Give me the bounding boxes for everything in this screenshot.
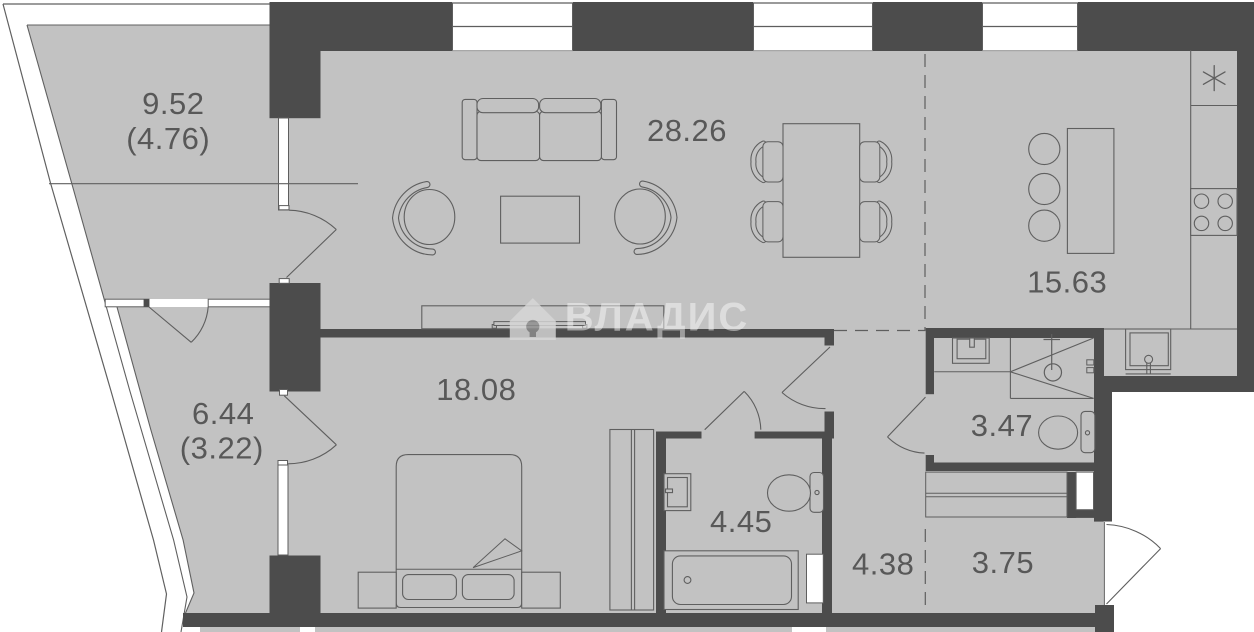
- svg-text:(3.22): (3.22): [180, 431, 264, 466]
- svg-text:ВЛАДИС: ВЛАДИС: [565, 296, 749, 340]
- svg-text:18.08: 18.08: [436, 372, 516, 407]
- svg-text:4.45: 4.45: [710, 504, 772, 539]
- svg-text:6.44: 6.44: [192, 396, 254, 431]
- svg-text:4.38: 4.38: [852, 547, 914, 582]
- svg-text:3.75: 3.75: [972, 545, 1034, 580]
- svg-text:9.52: 9.52: [142, 86, 204, 121]
- svg-text:28.26: 28.26: [647, 113, 727, 148]
- svg-text:(4.76): (4.76): [126, 121, 210, 156]
- svg-text:15.63: 15.63: [1027, 265, 1107, 300]
- svg-text:3.47: 3.47: [971, 408, 1033, 443]
